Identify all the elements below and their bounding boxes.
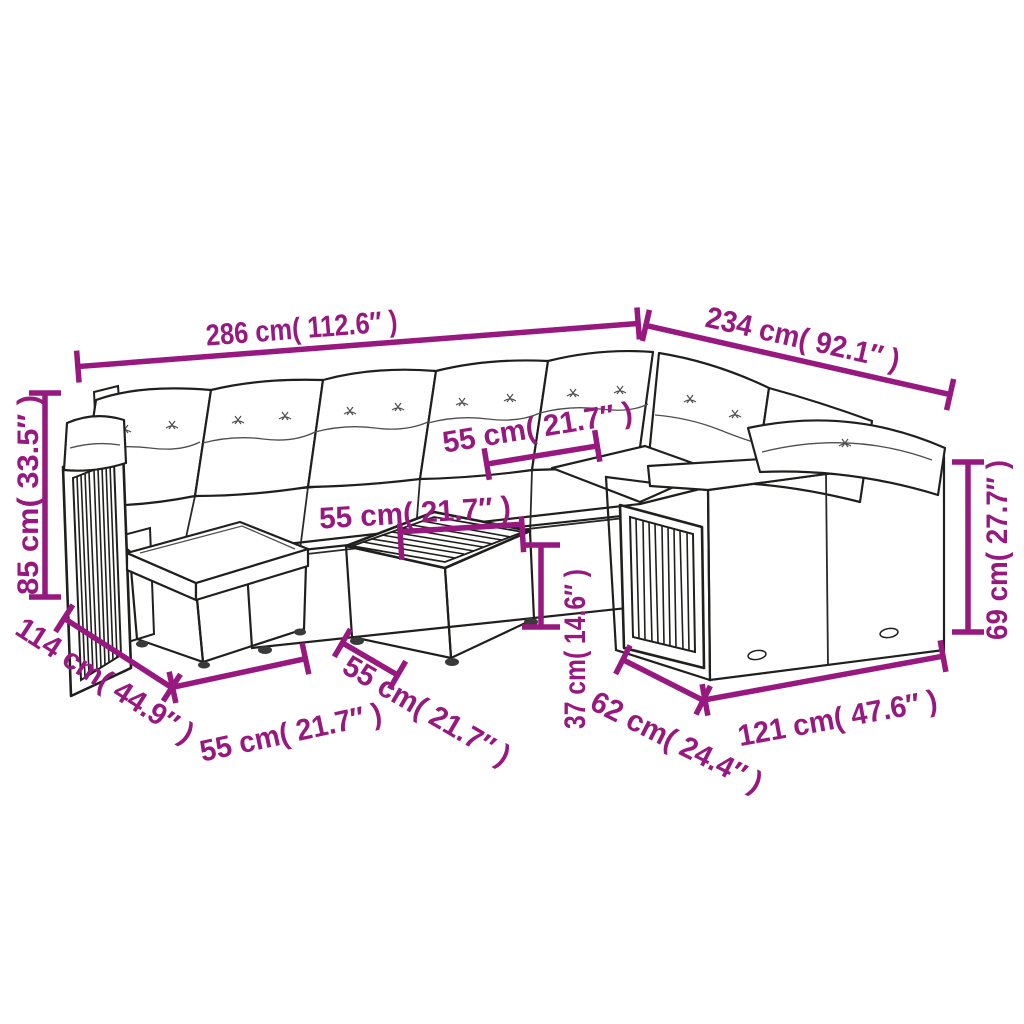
right-front-module-seam	[826, 474, 828, 666]
dim-label: 121 cm( 47.6″ )	[735, 684, 940, 753]
handle-detail	[747, 649, 766, 661]
ottoman-foot	[198, 662, 210, 669]
dim-total-height: 85 cm( 33.5″ )	[12, 393, 61, 597]
dim-label: 234 cm( 92.1″ )	[703, 301, 903, 377]
ottoman-foot	[294, 629, 306, 636]
acacia-panel-right	[620, 505, 704, 668]
back-pillow	[308, 370, 436, 487]
back-pillow	[195, 380, 323, 496]
dim-arm-height: 69 cm( 27.7″ )	[952, 460, 1014, 640]
handle-detail	[879, 627, 898, 639]
table-foot	[445, 658, 459, 666]
dim-label: 37 cm( 14.6″ )	[559, 569, 592, 729]
coffee-table	[346, 512, 538, 666]
product-dimension-image: 286 cm( 112.6″ ) 234 cm( 92.1″ ) 85 cm( …	[0, 0, 1024, 1024]
dim-label: 69 cm( 27.7″ )	[981, 460, 1014, 640]
table-foot	[350, 637, 364, 645]
sofa-foot	[258, 646, 272, 654]
dim-label: 55 cm( 21.7″ )	[197, 697, 385, 768]
diagram-canvas: 286 cm( 112.6″ ) 234 cm( 92.1″ ) 85 cm( …	[0, 0, 1024, 1024]
ottoman-foot	[136, 641, 148, 648]
dim-table-top-depth: 55 cm( 21.7″ )	[326, 629, 524, 772]
dim-label: 85 cm( 33.5″ )	[12, 395, 45, 595]
